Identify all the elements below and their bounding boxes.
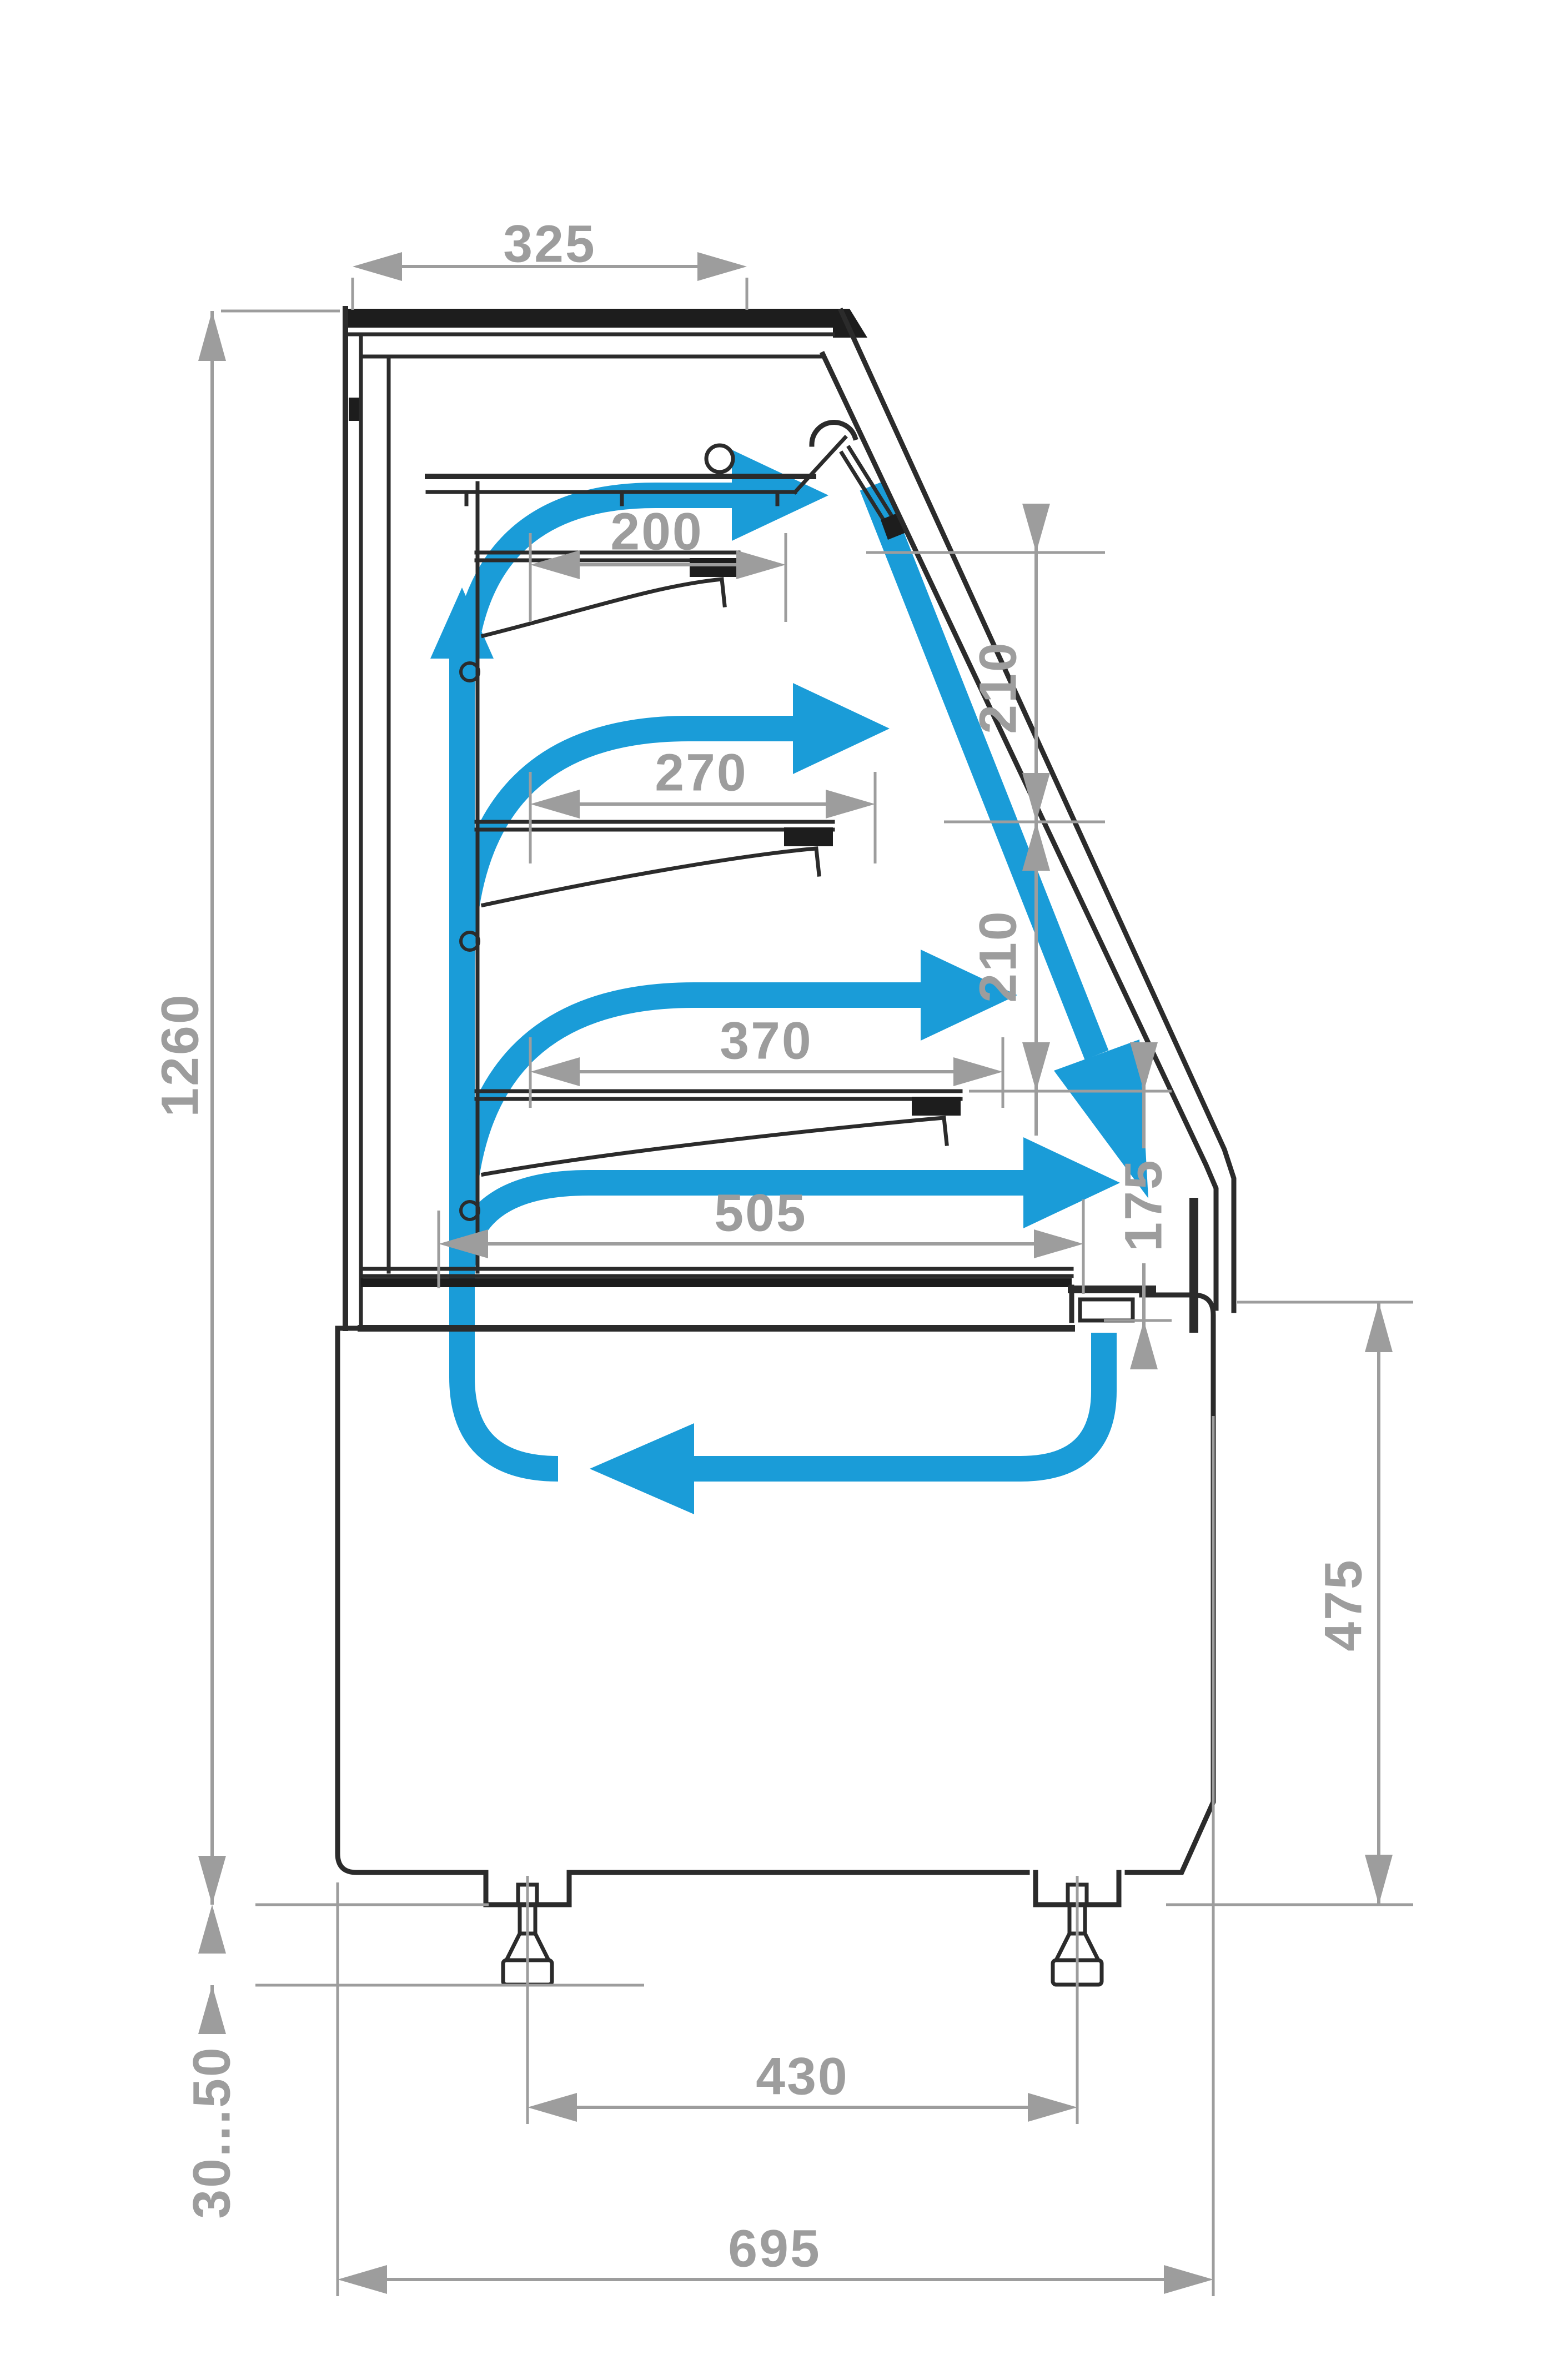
dim-label-tier-gap-middle: 210: [972, 910, 1025, 1003]
dim-label-tier-gap-top: 210: [972, 641, 1025, 734]
shelf-lower: [476, 1091, 961, 1174]
dim-label-base-height: 475: [1318, 1558, 1370, 1651]
airflow-tier2-arrowhead-icon: [793, 683, 890, 774]
dim-label-leg-spacing: 430: [756, 2051, 849, 2103]
technical-drawing: 325 200 270 370 505 210 210 175 1260 475…: [0, 0, 1542, 2380]
lamp-icon: [706, 445, 733, 472]
dim-label-front-opening: 175: [1118, 1158, 1171, 1252]
dim-label-shelf-lower: 370: [720, 1015, 813, 1068]
dim-label-shelf-middle: 270: [655, 747, 748, 800]
dim-label-leg-height-range: 30...50: [186, 2046, 239, 2219]
dim-label-well-depth: 505: [714, 1187, 807, 1240]
airflow-return: [694, 1333, 1104, 1469]
top-cap: [345, 309, 867, 421]
dim-label-top-depth: 325: [503, 218, 596, 271]
dim-label-shelf-top: 200: [610, 506, 704, 559]
dim-label-overall-height: 1260: [154, 993, 207, 1117]
airflow-tier3: [462, 995, 923, 1239]
airflow-return-arrowhead-icon: [590, 1423, 694, 1514]
airflow-arrows: [430, 450, 1148, 1514]
dim-475: [1166, 1302, 1413, 1905]
dim-695: [338, 1416, 1213, 2296]
airflow-tier1-arrowhead-icon: [732, 450, 828, 541]
dim-30-50: [198, 1905, 644, 2034]
dim-label-overall-depth: 695: [728, 2223, 821, 2276]
glass-hinge-icon: [812, 422, 855, 444]
airflow-tier4-arrowhead-icon: [1023, 1137, 1120, 1228]
